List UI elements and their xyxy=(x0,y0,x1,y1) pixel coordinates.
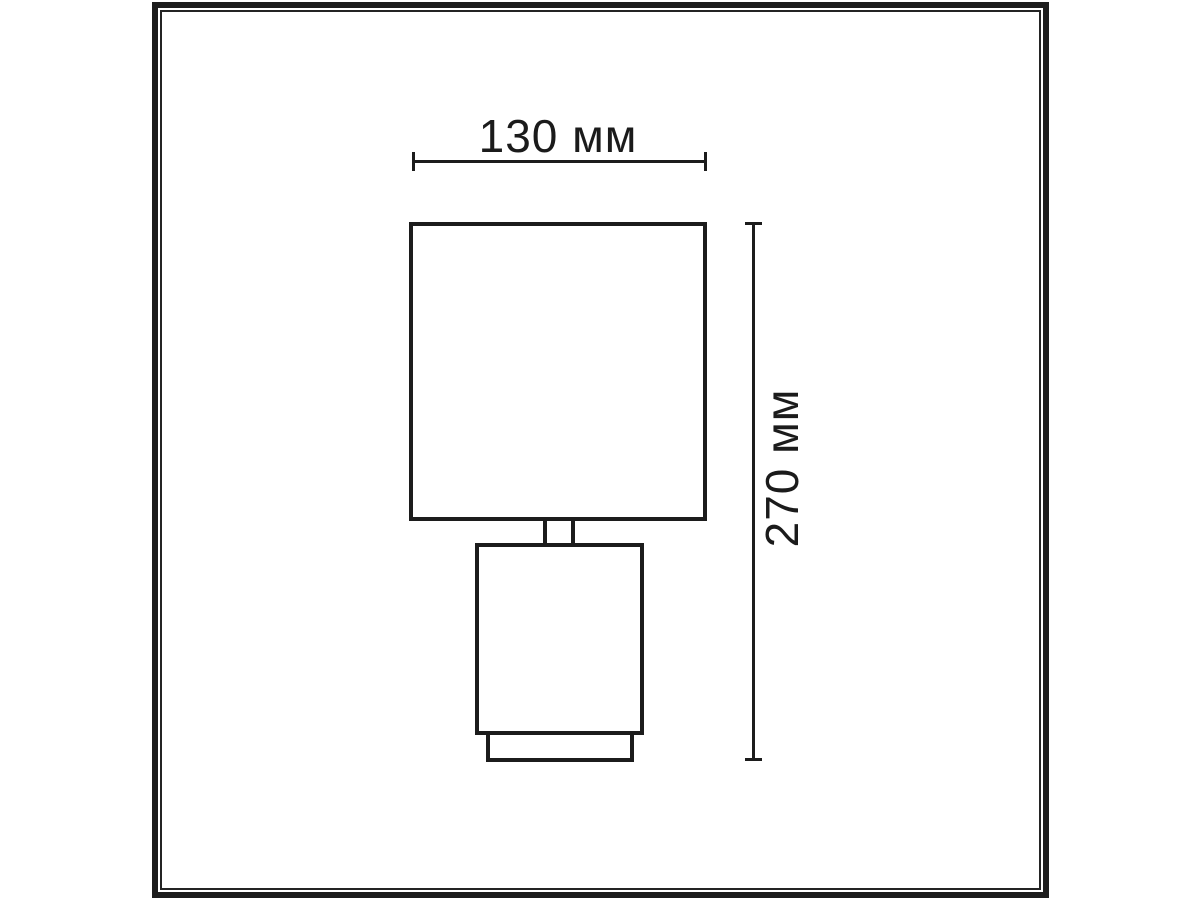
width-dimension-tick-right xyxy=(704,152,707,171)
diagram-canvas: 130 мм 270 мм xyxy=(0,0,1200,900)
lamp-neck-outline xyxy=(543,517,575,547)
height-dimension-cap-bottom xyxy=(745,758,762,761)
width-dimension-line xyxy=(413,160,707,163)
height-dimension-label: 270 мм xyxy=(759,389,805,548)
width-dimension-label: 130 мм xyxy=(479,113,638,159)
width-dimension-tick-left xyxy=(412,152,415,171)
height-dimension-cap-top xyxy=(745,222,762,225)
lampshade-outline xyxy=(409,222,707,521)
lamp-body-outline xyxy=(475,543,644,735)
height-dimension-line xyxy=(752,222,755,760)
lamp-base-outline xyxy=(486,731,634,762)
